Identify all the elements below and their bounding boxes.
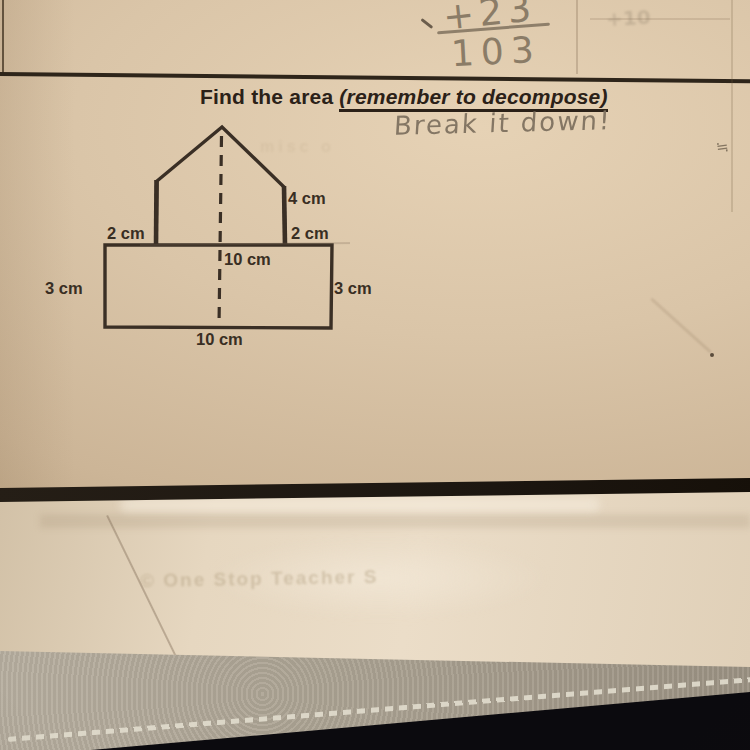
question-title-prefix: Find the area (200, 85, 339, 108)
paper-speck (710, 353, 714, 357)
table-cell-border (2, 0, 4, 74)
bleed-through-text: +10 (605, 5, 651, 31)
dimension-label-center-height: 10 cm (224, 250, 271, 269)
handwritten-scribble: ≒ (715, 137, 730, 157)
pentagon-left-side (156, 180, 157, 246)
bleed-through-gridline (576, 0, 578, 74)
worksheet-photo: © One Stop Teacher S +10 misc o +23 103 … (0, 0, 750, 750)
handwritten-tick-mark (421, 18, 434, 29)
dimension-label-upper-right: 2 cm (291, 224, 329, 243)
handwritten-note: Break it down! (393, 105, 612, 141)
underlying-paper: © One Stop Teacher S (0, 483, 750, 669)
handwritten-denominator: 103 (450, 29, 542, 75)
paper-smudge-stripe (40, 514, 750, 528)
dimension-label-right-side: 3 cm (334, 279, 372, 298)
section-divider-line (0, 72, 750, 83)
dimension-label-upper-left: 2 cm (107, 224, 145, 243)
dimension-label-bottom: 10 cm (196, 330, 243, 349)
dimension-label-left-side: 3 cm (45, 279, 83, 298)
bleed-through-footer-text: © One Stop Teacher S (140, 566, 379, 592)
dimension-label-slant-right: 4 cm (288, 189, 326, 208)
center-dashed-line (219, 136, 222, 327)
worksheet-sheet: +10 misc o +23 103 Find the area (rememb… (0, 0, 750, 490)
bleed-through-gridline (731, 0, 733, 212)
paper-crease (651, 298, 712, 353)
pentagon-right-side (284, 186, 285, 246)
question-title: Find the area (remember to decompose) (200, 85, 608, 109)
